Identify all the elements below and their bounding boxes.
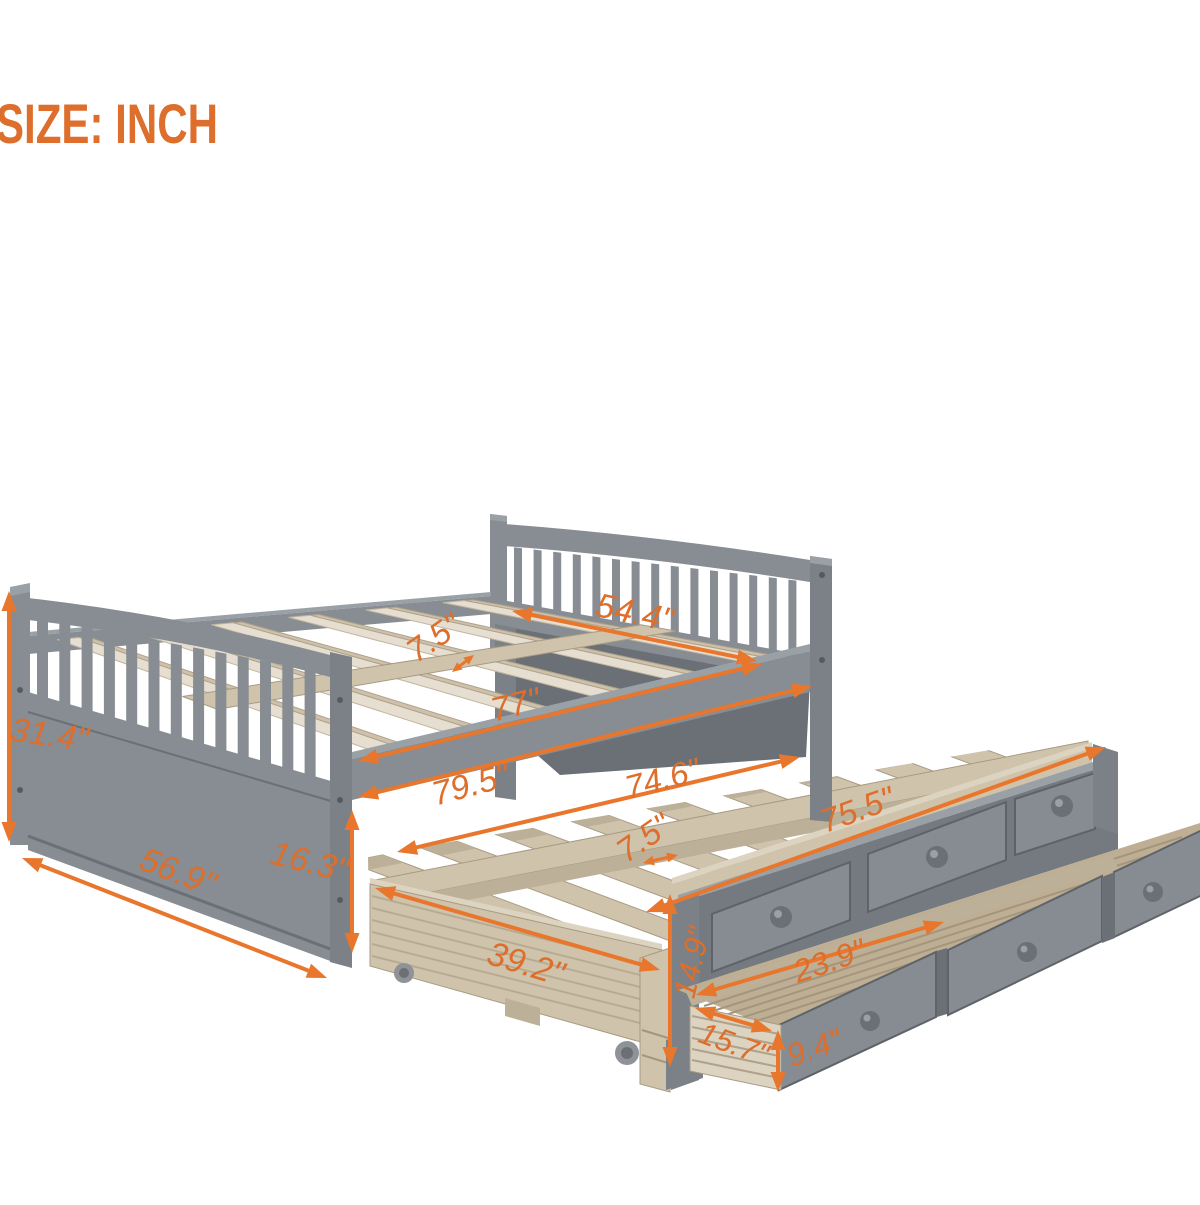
svg-text:SIZE: INCH: SIZE: INCH: [0, 92, 218, 155]
